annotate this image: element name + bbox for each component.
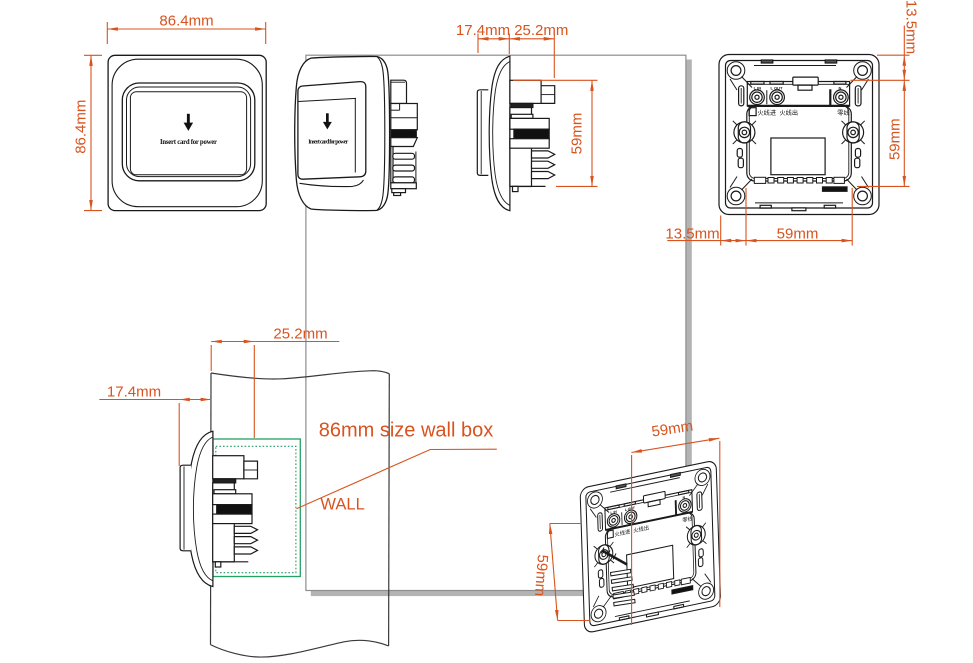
svg-text:17.4mm: 17.4mm: [107, 384, 161, 401]
svg-text:13.5mm: 13.5mm: [903, 0, 920, 54]
svg-text:59mm: 59mm: [777, 226, 819, 243]
svg-text:86.4mm: 86.4mm: [73, 100, 90, 154]
svg-text:Insert card for power: Insert card for power: [308, 140, 348, 146]
svg-text:59mm: 59mm: [531, 554, 551, 597]
svg-text:59mm: 59mm: [887, 118, 904, 160]
svg-text:86.4mm: 86.4mm: [159, 13, 213, 30]
svg-text:59mm: 59mm: [569, 113, 586, 155]
svg-text:13.5mm: 13.5mm: [665, 226, 719, 243]
svg-text:25.2mm: 25.2mm: [273, 326, 327, 343]
svg-text:Insert card for power: Insert card for power: [160, 139, 217, 146]
svg-text:WALL: WALL: [320, 496, 364, 514]
svg-text:17.4mm: 17.4mm: [456, 22, 510, 39]
svg-text:86mm size wall box: 86mm size wall box: [319, 420, 494, 442]
svg-text:25.2mm: 25.2mm: [514, 22, 568, 39]
